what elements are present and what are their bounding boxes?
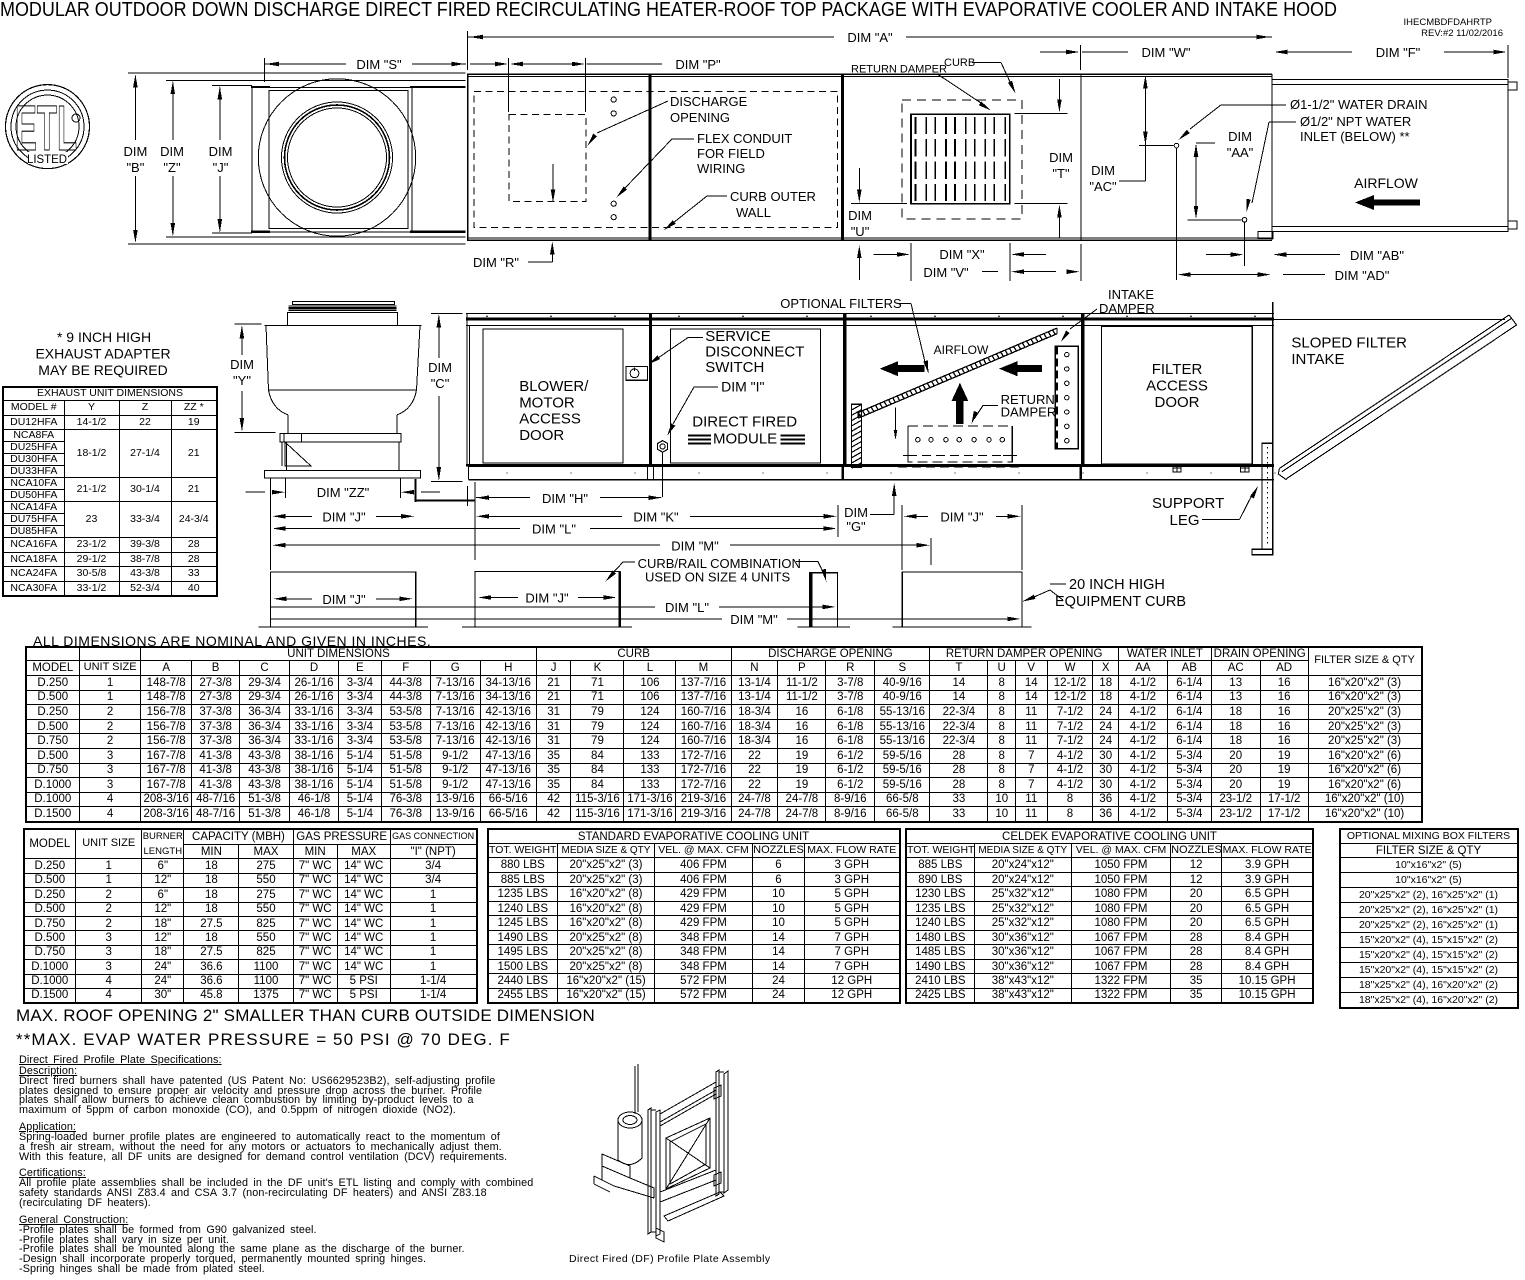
- svg-text:DIM: DIM: [123, 144, 147, 159]
- svg-text:OPENING: OPENING: [670, 110, 730, 125]
- svg-text:DIM "M": DIM "M": [671, 538, 719, 553]
- svg-text:DISCONNECT: DISCONNECT: [705, 344, 804, 361]
- svg-text:DOOR: DOOR: [519, 427, 564, 444]
- svg-text:SERVICE: SERVICE: [705, 328, 771, 345]
- svg-text:DIM: DIM: [1228, 129, 1252, 144]
- svg-text:DIM: DIM: [848, 208, 872, 223]
- svg-text:CURB: CURB: [944, 57, 975, 69]
- svg-text:EXHAUST ADAPTER: EXHAUST ADAPTER: [35, 346, 170, 362]
- svg-text:DIM "S": DIM "S": [356, 57, 402, 72]
- svg-text:WALL: WALL: [736, 205, 771, 220]
- svg-text:DIM "I": DIM "I": [721, 379, 764, 395]
- svg-text:FOR FIELD: FOR FIELD: [697, 146, 765, 161]
- svg-text:DIM: DIM: [230, 357, 254, 372]
- svg-text:"Y": "Y": [233, 373, 251, 388]
- svg-text:BLOWER/: BLOWER/: [519, 378, 589, 395]
- svg-text:DIM: DIM: [1091, 163, 1115, 178]
- svg-text:"AA": "AA": [1227, 145, 1254, 160]
- svg-text:DIM "AB": DIM "AB": [1350, 248, 1404, 263]
- svg-text:INTAKE: INTAKE: [1108, 287, 1154, 302]
- svg-text:DIM "L": DIM "L": [665, 600, 709, 615]
- svg-text:SUPPORT: SUPPORT: [1152, 495, 1224, 512]
- svg-text:DIM "M": DIM "M": [730, 612, 778, 627]
- svg-text:DIM "P": DIM "P": [675, 57, 721, 72]
- svg-text:REV:#2 11/02/2016: REV:#2 11/02/2016: [1421, 28, 1503, 39]
- svg-text:SWITCH: SWITCH: [705, 359, 764, 376]
- svg-text:"U": "U": [851, 224, 870, 239]
- svg-text:DAMPER: DAMPER: [1099, 301, 1155, 316]
- svg-text:DIM "A": DIM "A": [847, 30, 893, 45]
- svg-text:DIM: DIM: [160, 144, 184, 159]
- svg-text:DIM "W": DIM "W": [1142, 45, 1191, 60]
- svg-text:DIM "R": DIM "R": [473, 255, 519, 270]
- svg-text:DAMPER: DAMPER: [1001, 405, 1057, 420]
- svg-text:"C": "C": [431, 376, 450, 391]
- svg-text:MODULAR OUTDOOR DOWN DISCHARGE: MODULAR OUTDOOR DOWN DISCHARGE DIRECT FI…: [0, 0, 1337, 21]
- svg-text:"AC": "AC": [1089, 179, 1117, 194]
- svg-text:DIM "J": DIM "J": [322, 592, 366, 607]
- svg-text:AIRFLOW: AIRFLOW: [934, 343, 989, 357]
- svg-text:FILTER: FILTER: [1152, 361, 1203, 378]
- svg-text:DIM: DIM: [209, 144, 233, 159]
- svg-text:DIM: DIM: [1049, 150, 1073, 165]
- svg-text:DIM "J": DIM "J": [940, 509, 984, 524]
- svg-text:ACCESS: ACCESS: [1146, 378, 1208, 395]
- svg-text:MOTOR: MOTOR: [519, 394, 575, 411]
- svg-text:SLOPED FILTER: SLOPED FILTER: [1291, 335, 1407, 352]
- svg-text:MAY BE REQUIRED: MAY BE REQUIRED: [38, 362, 167, 378]
- svg-text:DIM "F": DIM "F": [1376, 45, 1421, 60]
- svg-text:INLET (BELOW) **: INLET (BELOW) **: [1300, 129, 1410, 144]
- svg-text:CURB OUTER: CURB OUTER: [730, 189, 816, 204]
- svg-text:DIM "AD": DIM "AD": [1335, 268, 1390, 283]
- svg-text:ACCESS: ACCESS: [519, 411, 581, 428]
- svg-text:INTAKE: INTAKE: [1291, 351, 1344, 368]
- svg-text:DIM "ZZ": DIM "ZZ": [317, 485, 370, 500]
- svg-text:LISTED: LISTED: [27, 154, 67, 166]
- svg-text:20 INCH HIGH: 20 INCH HIGH: [1069, 577, 1165, 593]
- svg-text:OPTIONAL FILTERS: OPTIONAL FILTERS: [780, 296, 902, 311]
- svg-text:DISCHARGE: DISCHARGE: [670, 94, 748, 109]
- svg-text:LEG: LEG: [1170, 512, 1200, 529]
- svg-text:DIRECT FIRED: DIRECT FIRED: [692, 414, 797, 431]
- svg-text:* 9 INCH HIGH: * 9 INCH HIGH: [57, 329, 151, 345]
- svg-text:AIRFLOW: AIRFLOW: [1354, 175, 1419, 191]
- svg-text:MODULE: MODULE: [713, 431, 777, 448]
- svg-text:DIM: DIM: [844, 505, 868, 520]
- svg-text:DIM "J": DIM "J": [322, 509, 366, 524]
- svg-text:FLEX CONDUIT: FLEX CONDUIT: [697, 131, 792, 146]
- svg-text:"Z": "Z": [163, 160, 181, 175]
- svg-text:DOOR: DOOR: [1155, 394, 1200, 411]
- svg-text:"J": "J": [213, 160, 229, 175]
- svg-text:RETURN DAMPER: RETURN DAMPER: [851, 64, 947, 76]
- svg-text:"B": "B": [126, 160, 144, 175]
- svg-text:DIM "X": DIM "X": [939, 247, 985, 262]
- svg-text:DIM "J": DIM "J": [525, 591, 569, 606]
- svg-text:DIM "H": DIM "H": [542, 491, 588, 506]
- svg-text:EQUIPMENT CURB: EQUIPMENT CURB: [1055, 594, 1186, 610]
- svg-text:WIRING: WIRING: [697, 161, 745, 176]
- svg-text:"T": "T": [1052, 166, 1070, 181]
- svg-text:USED ON SIZE 4 UNITS: USED ON SIZE 4 UNITS: [645, 570, 791, 585]
- svg-text:DIM "V": DIM "V": [923, 265, 969, 280]
- svg-text:Ø1-1/2" WATER DRAIN: Ø1-1/2" WATER DRAIN: [1290, 97, 1428, 112]
- svg-text:DIM "K": DIM "K": [633, 509, 679, 524]
- svg-text:DIM "L": DIM "L": [532, 522, 576, 537]
- svg-text:"G": "G": [846, 519, 866, 534]
- svg-text:Ø1/2" NPT WATER: Ø1/2" NPT WATER: [1300, 114, 1411, 129]
- svg-text:IHECMBDFDAHRTP: IHECMBDFDAHRTP: [1404, 17, 1493, 28]
- svg-text:DIM: DIM: [428, 360, 452, 375]
